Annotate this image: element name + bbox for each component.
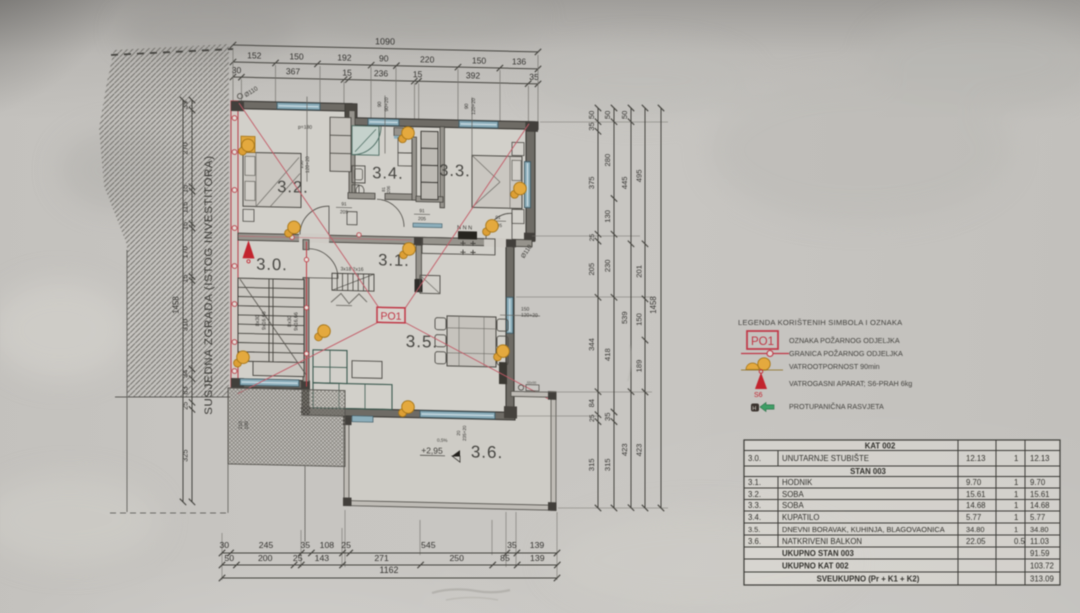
svg-text:NATKRIVENI BALKON: NATKRIVENI BALKON xyxy=(782,537,862,546)
svg-text:271: 271 xyxy=(374,553,389,563)
svg-text:3.6.: 3.6. xyxy=(748,537,761,546)
svg-text:0.5: 0.5 xyxy=(1014,537,1026,546)
svg-text:83: 83 xyxy=(181,386,190,394)
svg-text:201: 201 xyxy=(635,265,644,278)
svg-text:15.61: 15.61 xyxy=(1030,490,1050,499)
svg-text:60x90: 60x90 xyxy=(527,381,536,385)
svg-text:25: 25 xyxy=(341,540,351,550)
svg-text:PO1: PO1 xyxy=(751,336,774,348)
svg-text:1: 1 xyxy=(1014,501,1018,510)
svg-text:22.05: 22.05 xyxy=(966,537,986,546)
svg-text:392: 392 xyxy=(466,70,481,80)
svg-text:325: 325 xyxy=(181,450,190,462)
svg-text:90: 90 xyxy=(464,103,470,109)
svg-text:235+20: 235+20 xyxy=(462,425,467,441)
svg-text:445: 445 xyxy=(620,176,629,189)
svg-text:230: 230 xyxy=(603,259,612,272)
svg-text:205: 205 xyxy=(587,263,596,276)
svg-text:91.59: 91.59 xyxy=(1030,549,1050,558)
svg-text:250: 250 xyxy=(449,553,464,563)
svg-text:5.77: 5.77 xyxy=(1030,513,1045,522)
svg-text:90+20: 90+20 xyxy=(384,97,390,111)
svg-text:315: 315 xyxy=(603,458,612,471)
svg-text:50: 50 xyxy=(620,111,629,119)
svg-text:423: 423 xyxy=(635,444,644,457)
svg-text:206: 206 xyxy=(386,185,391,193)
svg-text:SVEUKUPNO (Pr + K1 + K2): SVEUKUPNO (Pr + K1 + K2) xyxy=(817,575,920,584)
svg-text:3x18 2x16: 3x18 2x16 xyxy=(340,266,363,273)
svg-text:15: 15 xyxy=(181,274,190,282)
svg-text:108: 108 xyxy=(320,540,335,550)
svg-text:KUPATILO: KUPATILO xyxy=(782,513,819,522)
svg-text:VATROGASNI APARAT; S6-PRAH 6kg: VATROGASNI APARAT; S6-PRAH 6kg xyxy=(789,379,912,388)
svg-text:205: 205 xyxy=(418,216,426,222)
svg-text:SUSJEDNA ZGRADA (ISTOG INVESTI: SUSJEDNA ZGRADA (ISTOG INVESTITORA) xyxy=(203,155,215,415)
svg-text:1: 1 xyxy=(1014,525,1018,534)
svg-text:VATROOTPORNOST 90min: VATROOTPORNOST 90min xyxy=(789,362,880,371)
svg-text:120+20: 120+20 xyxy=(305,156,311,173)
svg-text:1: 1 xyxy=(1014,454,1018,463)
svg-text:150: 150 xyxy=(289,51,304,61)
svg-text:120+20: 120+20 xyxy=(471,98,477,115)
svg-text:SOBA: SOBA xyxy=(782,490,804,499)
svg-text:3.2.: 3.2. xyxy=(748,490,761,499)
svg-text:12.13: 12.13 xyxy=(966,454,986,463)
svg-text:3.0.: 3.0. xyxy=(256,256,288,275)
svg-text:3.5.: 3.5. xyxy=(406,332,438,352)
svg-text:85: 85 xyxy=(500,553,510,563)
svg-text:90: 90 xyxy=(379,53,389,63)
svg-text:9.70: 9.70 xyxy=(966,478,982,487)
svg-text:35: 35 xyxy=(587,122,596,130)
svg-text:545: 545 xyxy=(421,540,436,550)
svg-text:34.80: 34.80 xyxy=(966,525,985,534)
svg-text:418: 418 xyxy=(603,348,612,361)
svg-text:34: 34 xyxy=(181,370,190,378)
svg-text:315: 315 xyxy=(587,458,596,471)
svg-text:15: 15 xyxy=(342,67,352,77)
svg-text:143: 143 xyxy=(315,553,330,563)
svg-text:170: 170 xyxy=(181,246,190,258)
svg-text:115: 115 xyxy=(181,202,190,214)
svg-text:25: 25 xyxy=(589,234,596,242)
svg-text:3.5.: 3.5. xyxy=(748,525,760,534)
svg-text:50: 50 xyxy=(224,553,234,563)
svg-text:3.3.: 3.3. xyxy=(748,501,761,510)
svg-text:20: 20 xyxy=(456,430,461,436)
svg-text:192: 192 xyxy=(337,52,352,62)
svg-text:8x30: 8x30 xyxy=(255,315,261,326)
svg-text:9x16,66: 9x16,66 xyxy=(294,312,300,331)
svg-text:280: 280 xyxy=(603,154,612,167)
svg-text:495: 495 xyxy=(635,170,644,183)
svg-text:14.68: 14.68 xyxy=(1030,501,1050,510)
svg-text:1090: 1090 xyxy=(375,36,395,46)
svg-text:14.68: 14.68 xyxy=(966,501,986,510)
svg-text:12.13: 12.13 xyxy=(1030,454,1050,463)
svg-text:UKUPNO KAT 002: UKUPNO KAT 002 xyxy=(782,562,849,571)
svg-text:34.80: 34.80 xyxy=(1030,525,1049,534)
svg-text:STAN 003: STAN 003 xyxy=(850,467,886,476)
svg-text:1162: 1162 xyxy=(380,565,399,575)
svg-text:25: 25 xyxy=(589,414,596,422)
svg-text:310: 310 xyxy=(181,319,190,331)
svg-text:25: 25 xyxy=(293,553,303,563)
svg-text:270: 270 xyxy=(181,142,190,154)
svg-text:5.77: 5.77 xyxy=(966,513,981,522)
svg-text:DNEVNI BORAVAK, KUHINJA, BLAGO: DNEVNI BORAVAK, KUHINJA, BLAGOVAONICA xyxy=(782,525,945,534)
svg-text:3.6.: 3.6. xyxy=(471,442,503,462)
svg-text:0,5%: 0,5% xyxy=(437,438,447,443)
svg-text:8x30: 8x30 xyxy=(287,315,293,326)
svg-text:539: 539 xyxy=(620,311,629,324)
svg-text:LEGENDA KORIŠTENIH SIMBOLA I: LEGENDA KORIŠTENIH SIMBOLA I OZNAKA xyxy=(738,318,903,327)
svg-text:3.4.: 3.4. xyxy=(748,513,761,522)
svg-text:15: 15 xyxy=(413,69,423,79)
svg-text:3.3.: 3.3. xyxy=(439,162,471,181)
svg-text:HODNIK: HODNIK xyxy=(782,478,813,487)
svg-text:1458: 1458 xyxy=(172,296,181,313)
svg-text:11.03: 11.03 xyxy=(1030,537,1049,546)
svg-text:PROTUPANIČNA RASVJETA: PROTUPANIČNA RASVJETA xyxy=(789,402,884,411)
svg-text:3.2.: 3.2. xyxy=(277,178,309,197)
svg-text:30: 30 xyxy=(219,540,229,550)
svg-text:344: 344 xyxy=(587,338,596,351)
svg-text:152: 152 xyxy=(247,50,262,60)
svg-text:139: 139 xyxy=(530,553,545,563)
svg-text:90: 90 xyxy=(377,101,383,107)
svg-text:205: 205 xyxy=(340,209,348,215)
svg-text:150: 150 xyxy=(635,313,644,326)
svg-text:+2,95: +2,95 xyxy=(421,445,443,455)
svg-text:OZNAKA POŽARNOG ODJELJKA: OZNAKA POŽARNOG ODJELJKA xyxy=(789,336,900,345)
svg-text:136: 136 xyxy=(512,56,527,66)
svg-text:103.72: 103.72 xyxy=(1030,562,1054,571)
svg-text:130: 130 xyxy=(603,210,612,223)
svg-text:Ø110: Ø110 xyxy=(243,85,260,99)
svg-text:15: 15 xyxy=(181,222,190,230)
svg-text:200: 200 xyxy=(258,553,273,563)
svg-text:35: 35 xyxy=(507,540,517,550)
svg-text:150: 150 xyxy=(472,55,487,65)
svg-text:375: 375 xyxy=(587,176,596,189)
svg-text:3.1.: 3.1. xyxy=(748,478,761,487)
svg-text:50: 50 xyxy=(587,111,596,119)
svg-text:367: 367 xyxy=(286,66,301,76)
svg-text:35: 35 xyxy=(529,72,539,82)
svg-text:1: 1 xyxy=(1014,490,1018,499)
svg-text:100: 100 xyxy=(244,421,250,430)
svg-text:UNUTARNJE STUBIŠTE: UNUTARNJE STUBIŠTE xyxy=(782,454,869,463)
svg-text:1458: 1458 xyxy=(649,296,658,313)
svg-text:139: 139 xyxy=(530,540,545,550)
svg-text:GRANICA POŽARNOG ODJELJKA: GRANICA POŽARNOG ODJELJKA xyxy=(789,349,903,358)
svg-text:245: 245 xyxy=(259,540,274,550)
svg-text:KAT 002: KAT 002 xyxy=(865,442,896,451)
svg-text:50: 50 xyxy=(603,111,612,119)
svg-text:3.0.: 3.0. xyxy=(748,454,761,463)
svg-text:SOBA: SOBA xyxy=(782,501,804,510)
svg-text:25: 25 xyxy=(181,402,190,410)
svg-text:220: 220 xyxy=(420,54,435,64)
svg-text:120+20: 120+20 xyxy=(521,313,538,319)
svg-text:1: 1 xyxy=(1014,478,1018,487)
svg-text:p=180: p=180 xyxy=(298,124,312,130)
svg-text:1: 1 xyxy=(1014,513,1018,522)
svg-text:91: 91 xyxy=(495,215,501,221)
svg-text:91: 91 xyxy=(341,201,347,207)
svg-text:S6: S6 xyxy=(754,392,763,399)
svg-text:H: H xyxy=(752,406,756,412)
svg-text:15: 15 xyxy=(181,185,190,193)
svg-text:3.4.: 3.4. xyxy=(372,164,404,183)
svg-text:84: 84 xyxy=(587,399,596,407)
svg-text:189: 189 xyxy=(635,360,644,373)
svg-text:15.61: 15.61 xyxy=(966,490,986,499)
svg-text:9.70: 9.70 xyxy=(1030,478,1046,487)
svg-text:423: 423 xyxy=(620,443,629,456)
svg-text:236: 236 xyxy=(374,68,389,78)
svg-text:313.09: 313.09 xyxy=(1030,575,1054,584)
svg-text:UKUPNO STAN 003: UKUPNO STAN 003 xyxy=(782,549,854,558)
svg-text:35: 35 xyxy=(603,413,612,421)
svg-text:9x16,66: 9x16,66 xyxy=(262,311,268,330)
svg-text:35: 35 xyxy=(300,540,310,550)
svg-text:91: 91 xyxy=(419,208,425,214)
svg-text:PO1: PO1 xyxy=(380,310,401,322)
